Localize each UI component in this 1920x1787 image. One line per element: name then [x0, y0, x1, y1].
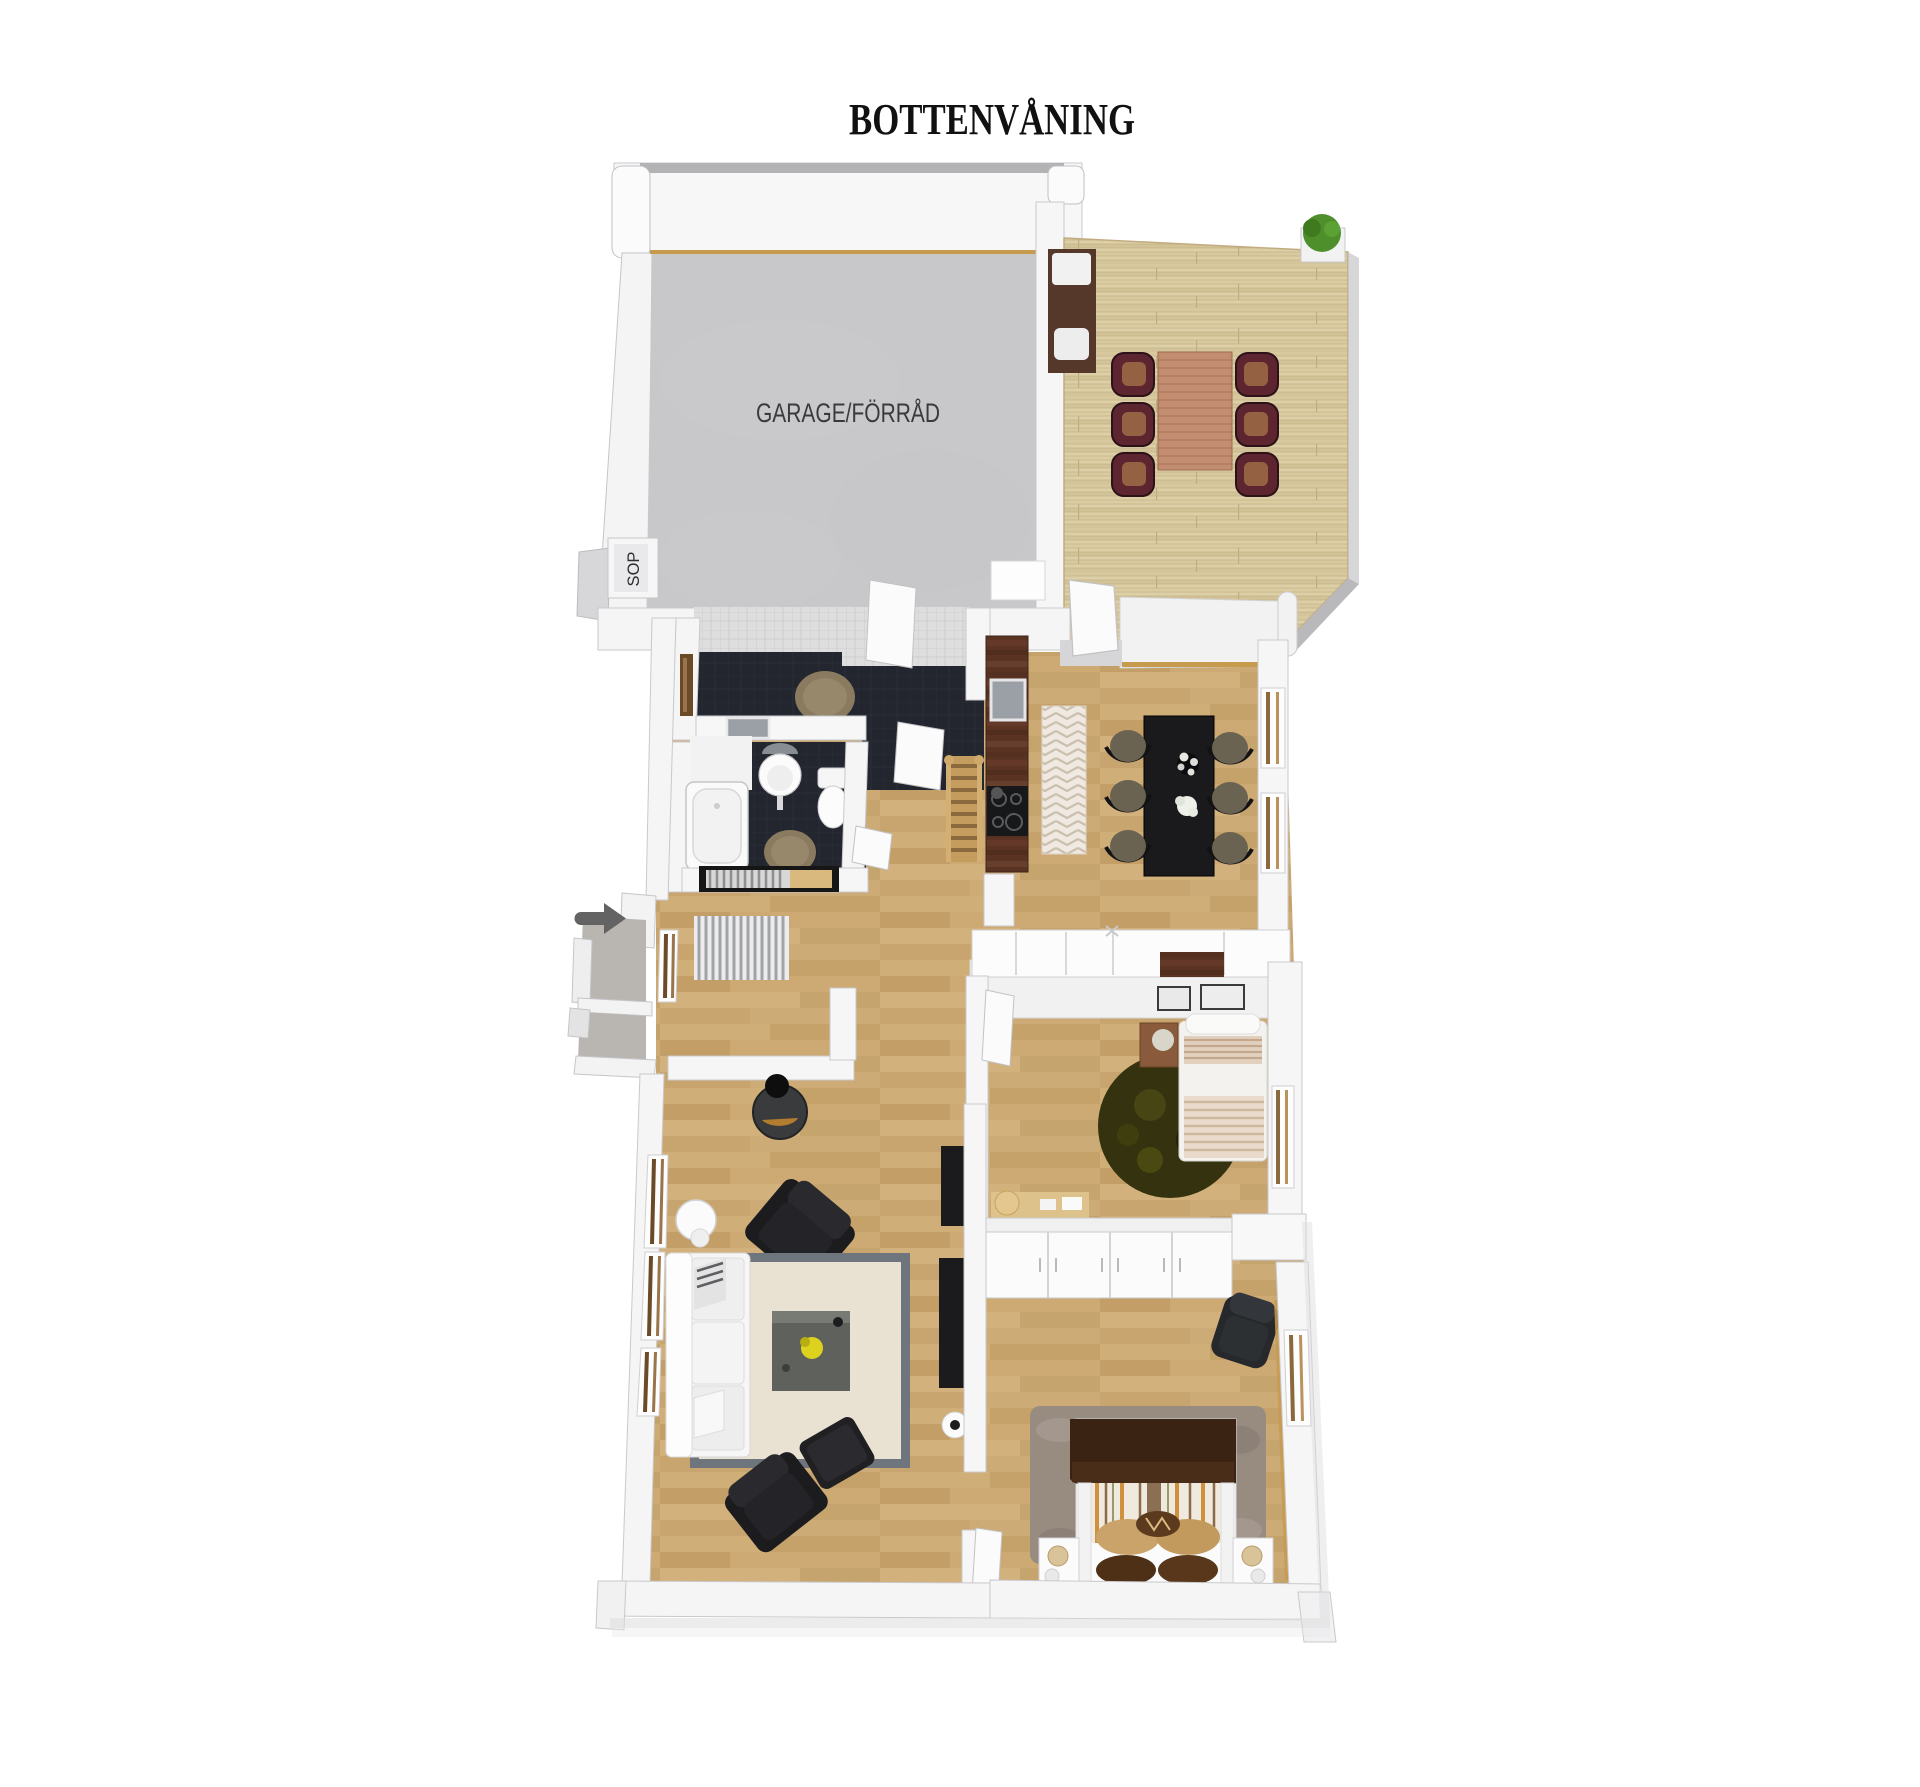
svg-text:GARAGE/FÖRRÅD: GARAGE/FÖRRÅD: [756, 397, 940, 428]
svg-text:SOP: SOP: [625, 552, 643, 587]
svg-text:BOTTENVÅNING: BOTTENVÅNING: [849, 95, 1135, 144]
